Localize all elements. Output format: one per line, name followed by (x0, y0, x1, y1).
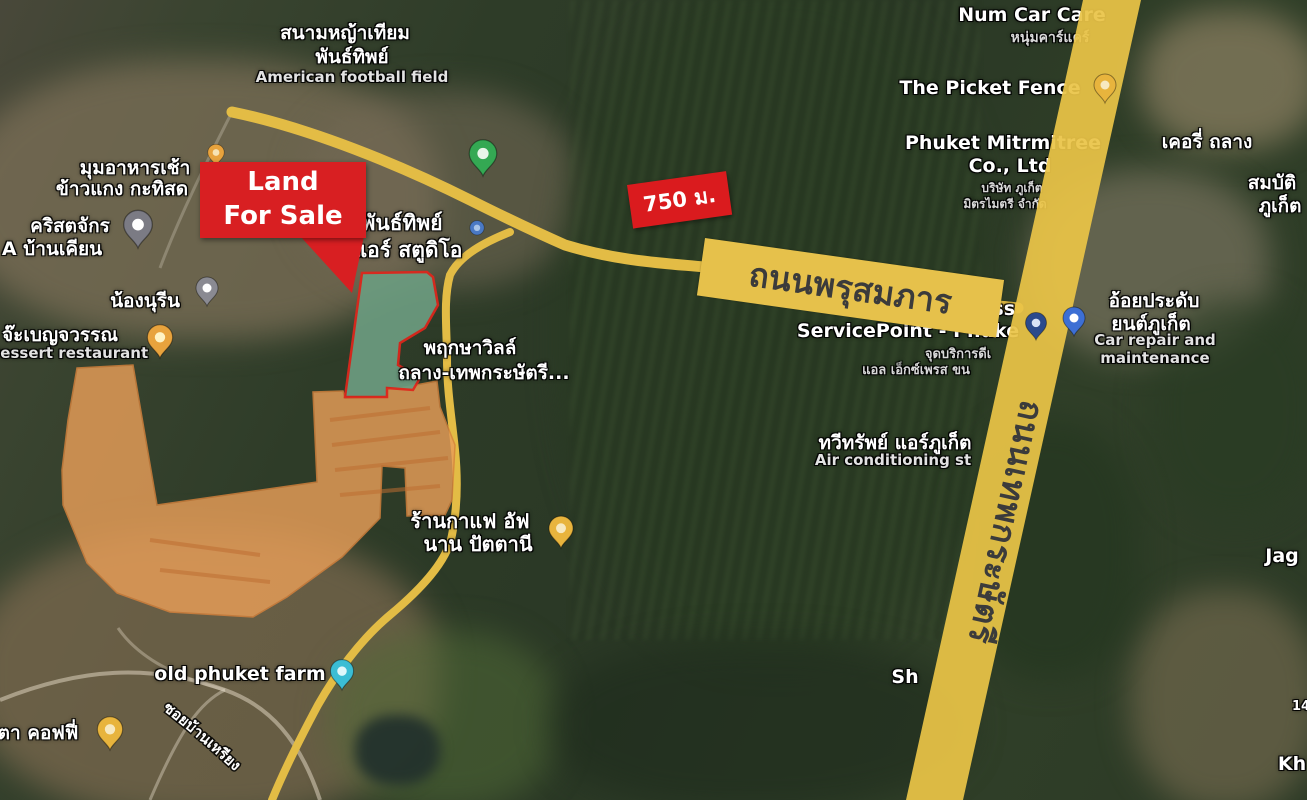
annotation-svg: ถนนเทพกระษัตรี ซอยบ้านเหรียง (0, 0, 1307, 800)
land-for-sale-label: Land For Sale (223, 166, 343, 234)
blue-dot-marker[interactable] (470, 221, 484, 235)
dessert-restaurant-pin[interactable] (147, 325, 172, 358)
satellite-map[interactable]: สนามหญ้าเทียมพันธ์ทิพย์American football… (0, 0, 1307, 800)
nong-nureen-pin[interactable] (196, 277, 218, 306)
football-field-pin[interactable] (469, 140, 497, 176)
land-for-sale-callout: Land For Sale (200, 162, 366, 238)
distance-badge-label: 750 ม. (641, 178, 718, 221)
callout-arrow (300, 236, 364, 293)
soi-ban-riang-label: ซอยบ้านเหรียง (160, 698, 245, 774)
coffee-shop-pin[interactable] (549, 516, 573, 548)
coffee-pin-southwest[interactable] (97, 717, 122, 750)
church-pin[interactable] (124, 210, 153, 248)
old-phuket-farm-pin[interactable] (330, 660, 353, 690)
